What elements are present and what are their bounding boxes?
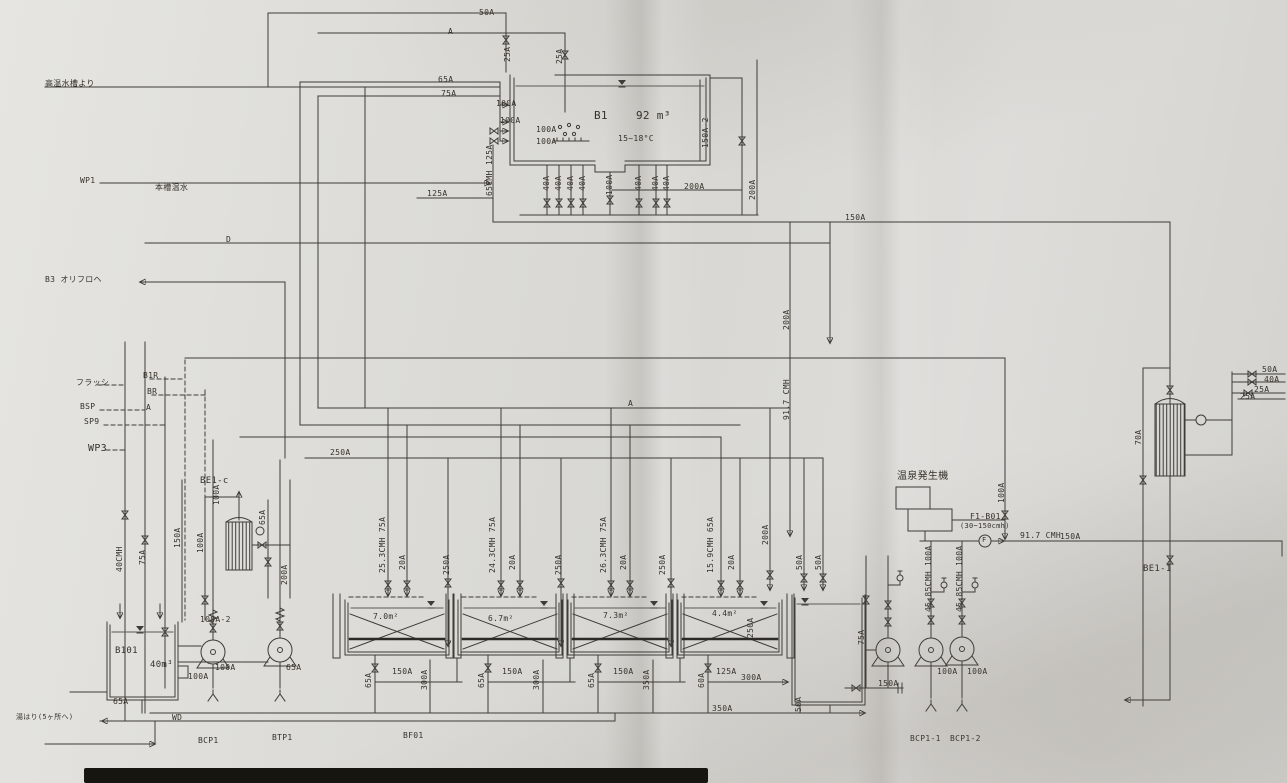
pump-tag: BCP1-2 (950, 735, 981, 743)
pipe-size-label: 25A (1240, 393, 1255, 401)
tank-b1 (510, 75, 710, 172)
flow-rate-label: 45.85CMH 100A (956, 545, 964, 612)
flow-rate-label: 40CMH (116, 546, 124, 572)
pipe-size-label: 200A (762, 525, 770, 545)
pipe-size-label: 50A (796, 555, 804, 570)
pipe-size-label: 300A (421, 670, 429, 690)
pipe-size-label: 125A (716, 668, 736, 676)
pipe-size-label: 150A (845, 214, 865, 222)
pipe-size-label: 20A (620, 555, 628, 570)
pipe-size-label: 150A (1060, 533, 1080, 541)
pipe-size-label: 150A-2 (702, 117, 710, 148)
pipe-size-label: 40A (635, 176, 643, 191)
pipe-size-label: 100A (188, 673, 208, 681)
pump-tag: BCP1 (198, 737, 218, 745)
pipe-size-label: 50A (479, 9, 494, 17)
pipe-size-label: 250A (747, 618, 755, 638)
pipe-size-label: 65A (286, 664, 301, 672)
pipe-size-label: 100A (937, 668, 957, 676)
pipe-size-label: 40A (1264, 376, 1279, 384)
line-tag: WP1 (80, 177, 95, 185)
tank-b101-capacity: 40m³ (150, 661, 173, 670)
pipe-size-label: 100A (998, 483, 1006, 503)
line-tag: B3 オリフロヘ (45, 276, 102, 284)
pipe-size-label: 65A (113, 698, 128, 706)
pipe-size-label: 200A (749, 180, 757, 200)
tank-b1-capacity: 92 m³ (636, 110, 671, 121)
pipe-size-label: 60A (698, 673, 706, 688)
pipe-size-label: 300A (533, 670, 541, 690)
flow-meter-letter: F (982, 537, 987, 544)
pipe-size-label: 350A (643, 670, 651, 690)
pipe-size-label: D (226, 236, 231, 244)
pump-tag: BTP1 (272, 734, 292, 742)
pipe-size-label: 40A (663, 176, 671, 191)
filter-area: 7.3m² (603, 612, 629, 620)
pipe-size-label: 200A (684, 183, 704, 191)
tank-b1-temperature: 15~18°C (618, 135, 654, 143)
pipe-size-label: A (628, 400, 633, 408)
line-tag: BR (147, 388, 157, 396)
pipe-size-label: 125A (427, 190, 447, 198)
pipe-size-label: 75A (441, 90, 456, 98)
filter-area: 4.4m² (712, 610, 738, 618)
pipe-size-label: 65A (365, 673, 373, 688)
pipe-size-label: 250A (443, 555, 451, 575)
pipe-size-label: 20A (509, 555, 517, 570)
pipe-size-label: 20A (399, 555, 407, 570)
line-tag: フラッシ (76, 379, 109, 387)
equipment-tag: BF01 (403, 732, 423, 740)
line-tag: WP3 (88, 444, 107, 454)
pipe-size-label: 100A (500, 117, 520, 125)
pipe-size-label: 200A (783, 310, 791, 330)
line-tag: SP9 (84, 418, 99, 426)
pipe-size-label: 100A (606, 175, 614, 195)
pipe-size-label: 100A (536, 138, 556, 146)
generator-label: 温泉発生機 (897, 472, 949, 482)
pipe-size-label: 65A (478, 673, 486, 688)
pipe-size-label: 300A (741, 674, 761, 682)
flow-rate-label: 91.7 CMH (1020, 532, 1061, 540)
line-note: 湯はり(5ヶ所へ) (16, 714, 73, 721)
flow-rate-label: 26.3CMH 75A (600, 517, 608, 573)
main-headers (140, 82, 1170, 539)
pipe-size-label: 40A (579, 176, 587, 191)
flow-meter-range: (30~150cmh) (960, 523, 1010, 530)
pipe-size-label: 65A (259, 510, 267, 525)
pipe-size-label: 40A (652, 176, 660, 191)
flow-rate-label: 91.7 CMH (783, 379, 791, 420)
flow-rate-label: 25.3CMH 75A (379, 517, 387, 573)
flow-rate-label: 65CMH (486, 170, 494, 196)
pipe-size-label: 50A (795, 697, 803, 712)
pipe-size-label: 65A (588, 673, 596, 688)
flow-rate-label: 45.85CMH 100A (925, 545, 933, 612)
pipe-size-label: 100A (496, 100, 516, 108)
line-tag: B1R (143, 372, 158, 380)
pipe-size-label: 100A-2 (200, 616, 231, 624)
pipe-size-label: 25A (1254, 386, 1269, 394)
heat-exchanger-be1-1 (1125, 222, 1285, 706)
flow-rate-label: 24.3CMH 75A (489, 517, 497, 573)
heat-exchanger-tag: BE1-1 (1143, 565, 1172, 574)
pipe-size-label: 250A (555, 555, 563, 575)
pipe-size-label: 200A (281, 565, 289, 585)
filter-area: 7.0m² (373, 613, 399, 621)
pipe-size-label: 150A (174, 528, 182, 548)
pipe-size-label: 25A (504, 47, 512, 62)
flow-meter-f1-b01 (920, 535, 1282, 556)
pipe-size-label: 100A (215, 664, 235, 672)
pipe-size-label: A (448, 28, 453, 36)
pipe-size-label: 40A (567, 176, 575, 191)
flow-meter-tag: F1-B01 (970, 513, 1001, 521)
pipe-size-label: 20A (728, 555, 736, 570)
pipe-size-label: A (146, 404, 151, 412)
pipe-size-label: 250A (659, 555, 667, 575)
pipe-size-label: 150A (613, 668, 633, 676)
pipe-size-label: 40A (543, 176, 551, 191)
pipe-size-label: 25A (556, 49, 564, 64)
pipe-size-label: 100A (967, 668, 987, 676)
pipe-size-label: 40A (555, 176, 563, 191)
filter-area: 6.7m² (488, 615, 514, 623)
pipe-size-label: 65A (438, 76, 453, 84)
pump-tag: BCP1-1 (910, 735, 941, 743)
pipe-size-label: 350A (712, 705, 732, 713)
line-note: 本槽温水 (155, 184, 188, 192)
pipe-size-label: 100A (536, 126, 556, 134)
pipe-size-label: 100A (213, 485, 221, 505)
pipe-size-label: 150A (878, 680, 898, 688)
tank-b101-tag: B101 (115, 647, 138, 656)
pipe-size-label: 50A (815, 555, 823, 570)
line-source-note: 高温水槽より (45, 80, 95, 88)
flow-rate-label: 15.9CMH 65A (707, 517, 715, 573)
pipe-size-label: 50A (1262, 366, 1277, 374)
tank-b1-tag: B1 (594, 110, 608, 121)
line-tag: WD (172, 714, 182, 722)
top-feed-lines (45, 13, 568, 408)
pipe-size-label: 70A (1135, 430, 1143, 445)
pipe-size-label: 100A (197, 533, 205, 553)
pipe-size-label: 150A (502, 668, 522, 676)
pipe-size-label: 250A (330, 449, 350, 457)
line-tag: BSP (80, 403, 95, 411)
photo-table-edge (84, 768, 708, 783)
pipe-size-label: 150A (392, 668, 412, 676)
pipe-size-label: 125A (486, 145, 494, 165)
tank-b101 (70, 604, 188, 713)
fifth-tank (792, 595, 865, 713)
diagram-sheet: 50AA65A75A25A25A100A100A100A100AB192 m³1… (0, 0, 1287, 783)
pipe-size-label: 75A (858, 630, 866, 645)
pipe-size-label: 75A (139, 550, 147, 565)
